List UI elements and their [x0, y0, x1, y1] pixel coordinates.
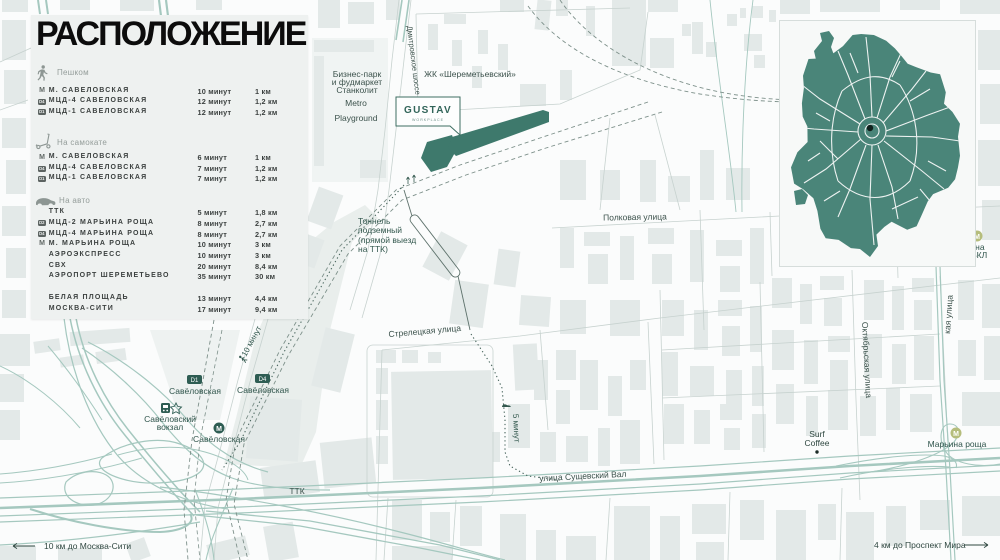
- svg-text:Савёловская: Савёловская: [193, 434, 245, 444]
- svg-text:Полковая улица: Полковая улица: [603, 211, 667, 222]
- svg-text:Савёловская: Савёловская: [169, 386, 221, 396]
- svg-text:ТТК: ТТК: [289, 486, 304, 496]
- svg-text:D1: D1: [191, 378, 199, 384]
- svg-text:M: M: [953, 431, 959, 438]
- svg-text:10 км до Москва-Сити: 10 км до Москва-Сити: [44, 541, 131, 551]
- svg-text:Metro: Metro: [345, 98, 367, 108]
- svg-text:подземный: подземный: [358, 225, 402, 235]
- svg-text:ЖК «Шереметьевский»: ЖК «Шереметьевский»: [424, 69, 516, 79]
- svg-text:M: M: [216, 426, 222, 433]
- svg-text:D4: D4: [259, 377, 267, 383]
- svg-text:4 км до Проспект Мира: 4 км до Проспект Мира: [874, 540, 966, 550]
- svg-text:WORKPLACE: WORKPLACE: [412, 118, 444, 122]
- svg-text:Марьина роща: Марьина роща: [928, 439, 987, 449]
- svg-text:на ТТК): на ТТК): [358, 244, 388, 254]
- svg-text:5 минут: 5 минут: [511, 414, 522, 443]
- svg-text:Coffee: Coffee: [805, 438, 830, 448]
- svg-text:вокзал: вокзал: [157, 422, 184, 432]
- svg-text:Станколит: Станколит: [336, 85, 377, 95]
- svg-text:Савёловская: Савёловская: [237, 385, 289, 395]
- svg-text:Playground: Playground: [334, 113, 377, 123]
- svg-text:GUSTAV: GUSTAV: [404, 105, 452, 116]
